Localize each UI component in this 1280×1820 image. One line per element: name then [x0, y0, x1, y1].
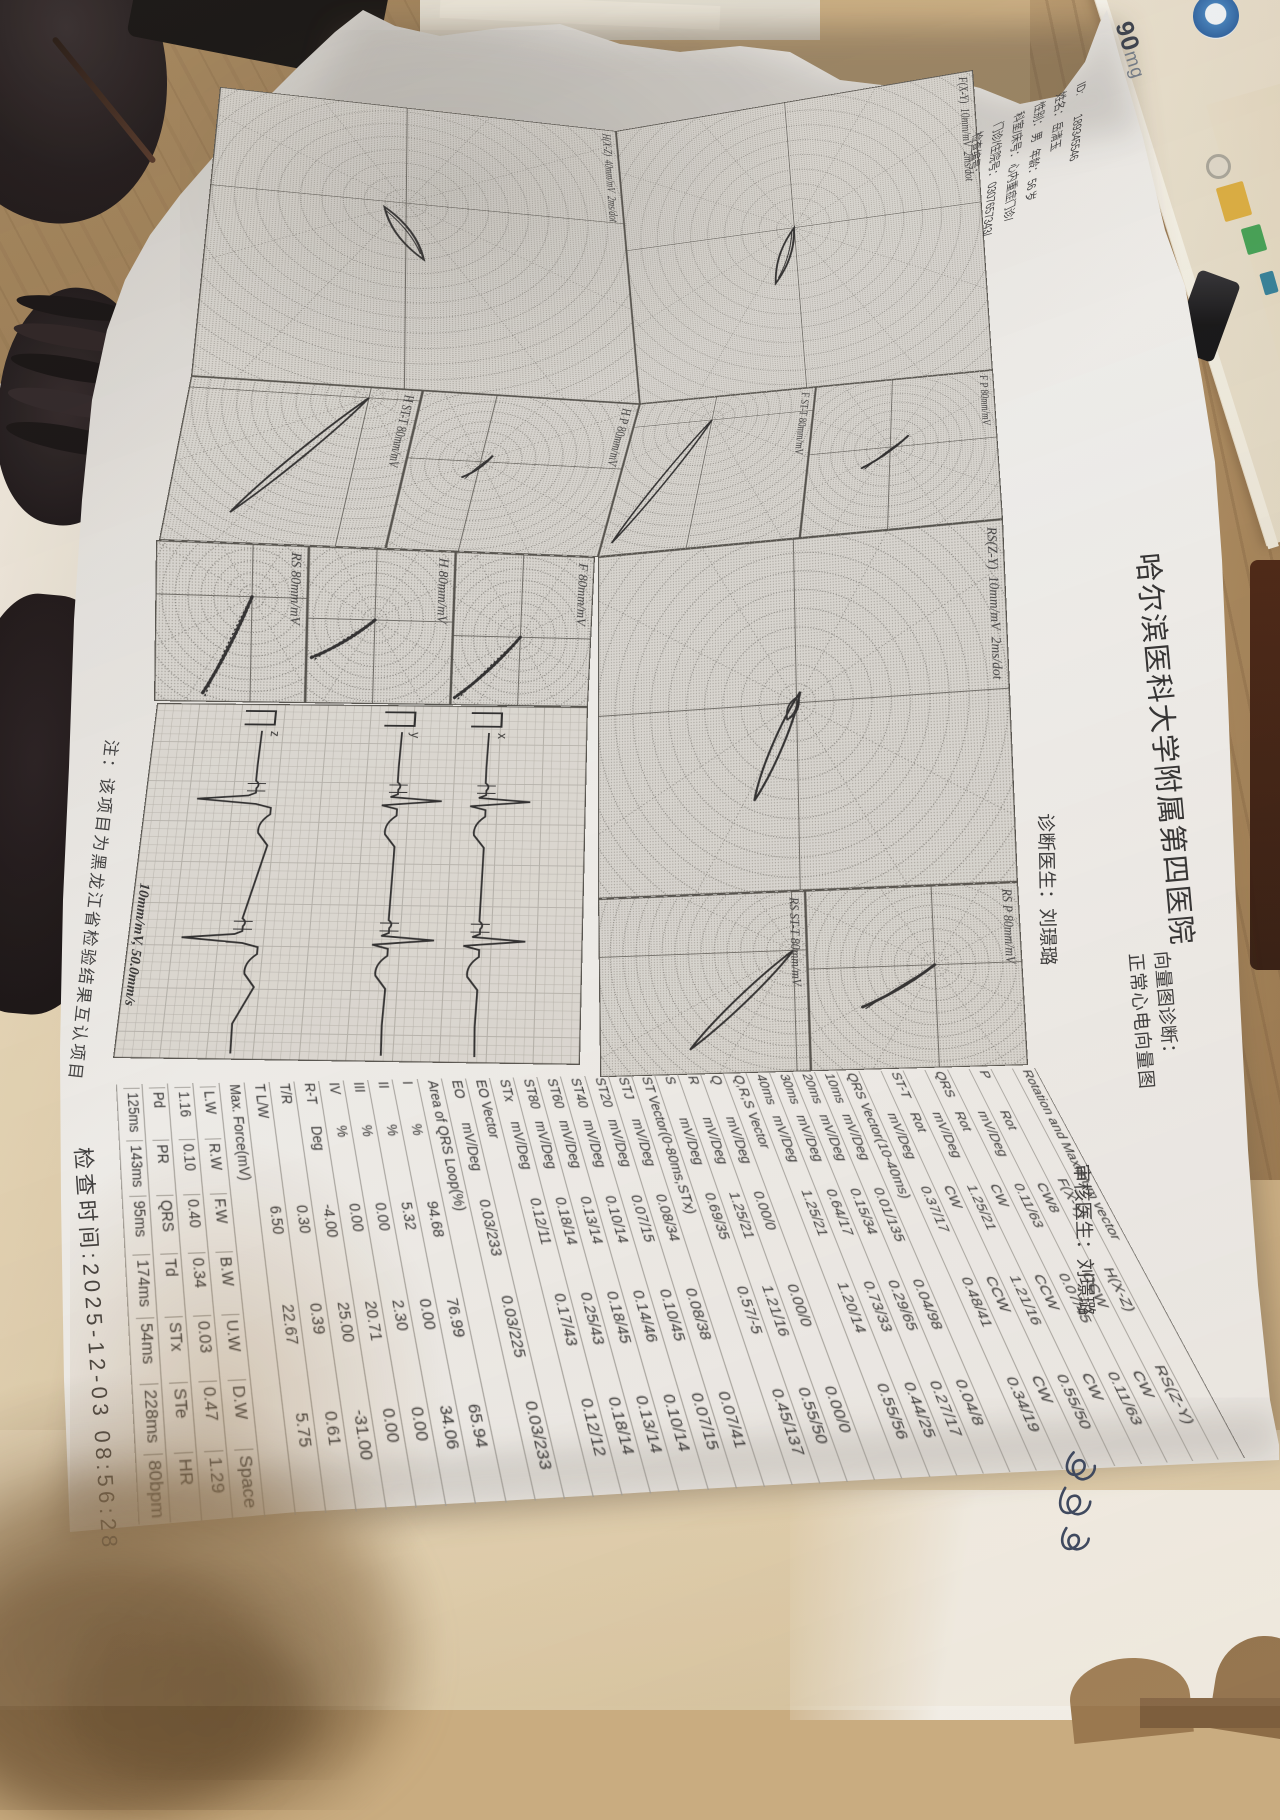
svg-text:RS ST-T 80mm/mV: RS ST-T 80mm/mV: [786, 896, 804, 988]
svg-text:H 80mm/mV: H 80mm/mV: [434, 557, 451, 625]
svg-text:z: z: [267, 731, 281, 737]
svg-text:x: x: [494, 733, 508, 739]
svg-text:RS 80mm/mV: RS 80mm/mV: [287, 551, 304, 626]
svg-text:F 80mm/mV: F 80mm/mV: [574, 562, 591, 627]
svg-text:y: y: [407, 732, 421, 738]
